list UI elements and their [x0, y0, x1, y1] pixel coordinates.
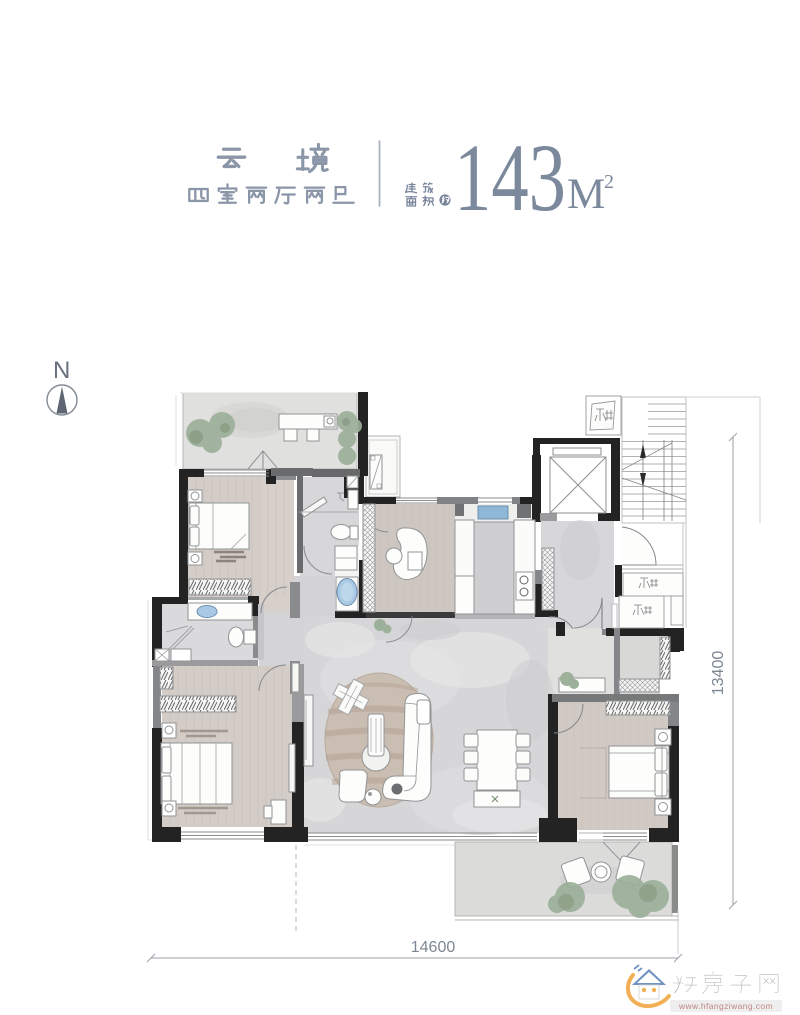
svg-text:www.hfangziwang.com: www.hfangziwang.com — [678, 1001, 773, 1011]
svg-text:143: 143 — [454, 124, 566, 231]
svg-text:N: N — [53, 357, 70, 384]
svg-text:14600: 14600 — [411, 939, 456, 956]
svg-text:13400: 13400 — [710, 651, 727, 696]
svg-text:M: M — [567, 171, 605, 218]
svg-text:2: 2 — [604, 171, 614, 193]
